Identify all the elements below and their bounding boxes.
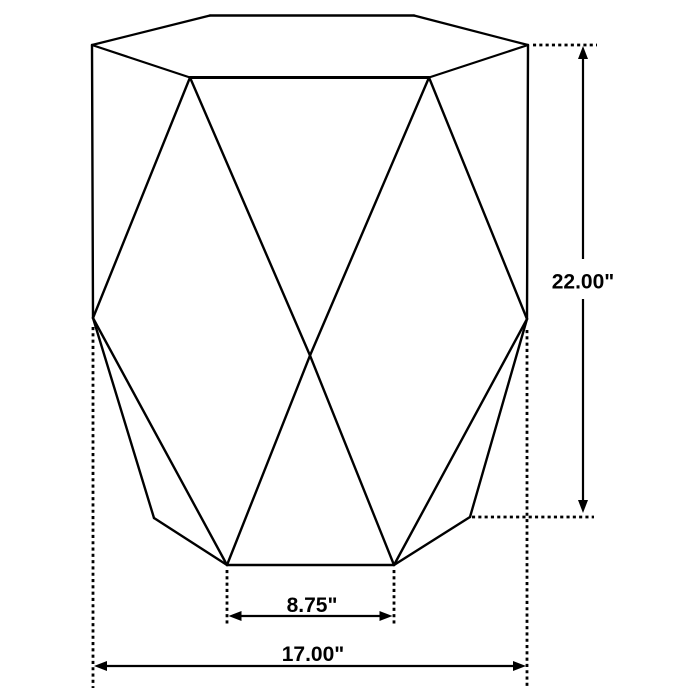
svg-text:8.75": 8.75"	[287, 594, 338, 617]
svg-text:17.00": 17.00"	[282, 643, 345, 666]
svg-text:22.00": 22.00"	[552, 271, 615, 294]
